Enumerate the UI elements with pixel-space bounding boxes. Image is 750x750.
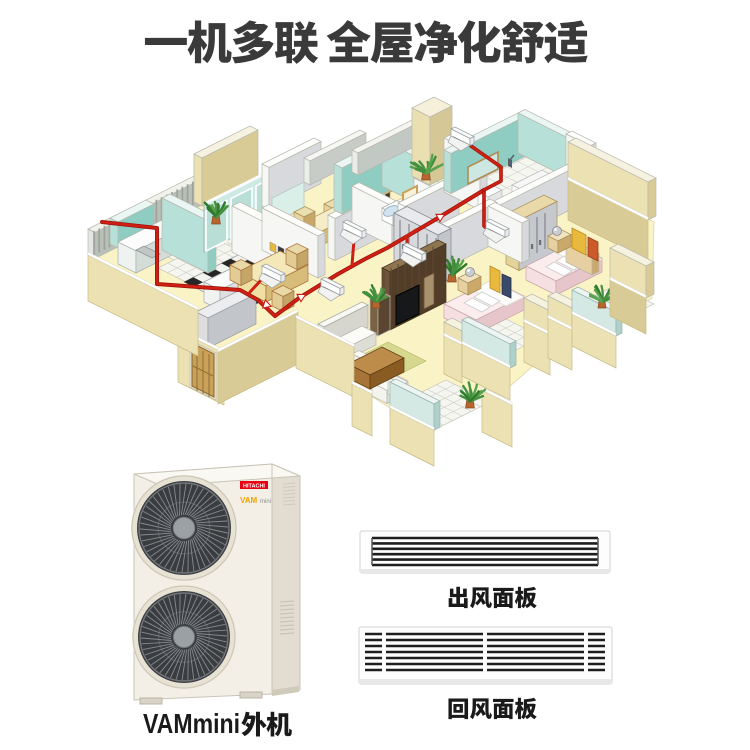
svg-text:VAM: VAM — [240, 496, 258, 505]
svg-text:mini: mini — [260, 499, 271, 505]
svg-text:HITACHI: HITACHI — [243, 484, 265, 490]
svg-text:VAMmini: VAMmini — [143, 708, 240, 739]
